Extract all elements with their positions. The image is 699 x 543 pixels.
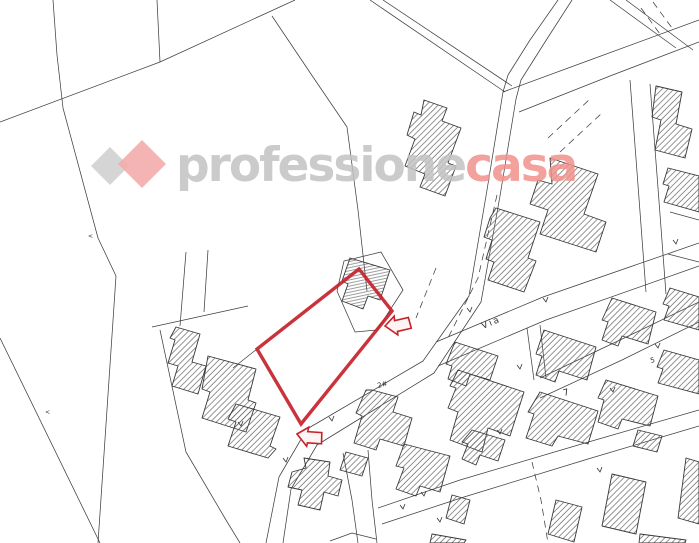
building-footprint: [652, 86, 692, 158]
building-footprint: [340, 452, 368, 476]
tick-mark: [673, 239, 678, 244]
parcel-line: [180, 252, 186, 326]
map-canvas: Via752#<< professionecasa: [0, 0, 699, 543]
parcel-line: [630, 80, 646, 292]
tick-mark: [329, 416, 334, 421]
map-label: <: [45, 409, 50, 416]
map-label: Via: [480, 315, 502, 332]
dashed-line: [448, 195, 497, 338]
tick-mark: [283, 457, 288, 462]
tick-mark: [517, 364, 522, 369]
map-label: 2#: [376, 379, 388, 389]
tick-mark: [597, 467, 602, 472]
parcel-line: [670, 212, 699, 220]
parcel-line: [330, 533, 376, 541]
building-footprint: [602, 298, 656, 346]
building-footprint: [430, 534, 466, 543]
building-footprint: [396, 444, 450, 496]
building-footprint: [462, 430, 505, 465]
dashed-line: [641, 8, 660, 34]
map-label: <: [88, 233, 93, 240]
building-footprint: [228, 404, 280, 458]
watermark-diamond-red: [118, 140, 166, 188]
parcel-line: [527, 328, 534, 380]
tick-mark: [543, 297, 548, 302]
watermark-text-professione: professione: [176, 138, 465, 193]
parcel-line: [53, 0, 63, 108]
building-footprint: [657, 350, 699, 394]
building-footprint: [484, 208, 540, 292]
building-footprint: [602, 474, 646, 534]
building-footprint: [598, 380, 658, 429]
parcel-line: [668, 254, 699, 262]
building-footprint: [639, 534, 686, 543]
building-footprint: [548, 500, 582, 542]
watermark-brand-text: professionecasa: [176, 138, 576, 193]
parcel-line: [204, 250, 208, 312]
plot-pointer-arrow: [295, 425, 324, 449]
dashed-line: [653, 2, 672, 28]
building-footprint: [663, 168, 699, 212]
building-footprint: [663, 288, 699, 330]
parcel-line: [370, 0, 505, 92]
building-footprint: [354, 390, 412, 450]
parcel-line: [383, 0, 512, 86]
parcel-line: [503, 0, 558, 92]
dashed-line: [416, 268, 436, 318]
watermark-text-casa: casa: [465, 138, 576, 193]
building-footprint: [526, 392, 598, 446]
building-footprint: [168, 327, 206, 394]
building-footprint: [678, 458, 699, 524]
parcel-line: [157, 0, 160, 62]
dashed-line: [548, 99, 590, 138]
parcel-line: [503, 20, 699, 92]
tick-mark: [400, 504, 405, 509]
parcel-line: [368, 450, 377, 543]
building-footprint: [446, 495, 470, 524]
parcel-line: [626, 0, 693, 50]
parcel-line: [0, 338, 100, 543]
dashed-line: [532, 462, 548, 543]
parcel-line: [0, 0, 295, 122]
building-footprint: [288, 458, 342, 510]
map-label: 5: [649, 356, 655, 365]
parcel-line: [152, 306, 248, 327]
building-footprint: [536, 330, 596, 382]
cadastral-map-image: Via752#<< professionecasa: [0, 0, 699, 543]
tick-mark: [437, 517, 442, 522]
agency-watermark: professionecasa: [91, 138, 576, 193]
map-label: 7: [562, 388, 570, 399]
building-footprint: [633, 430, 662, 452]
tick-mark: [467, 307, 472, 312]
dashed-boundary-lines: [416, 2, 672, 543]
